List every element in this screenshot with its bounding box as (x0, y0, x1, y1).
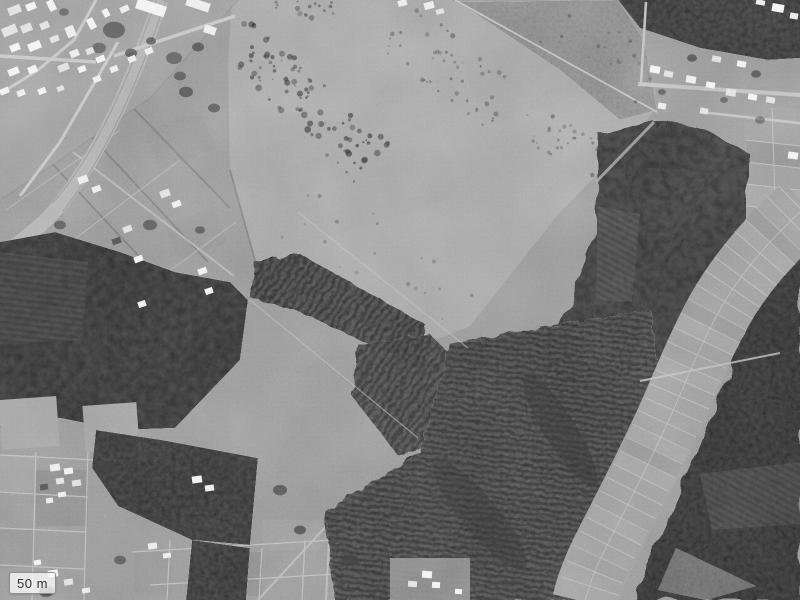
aerial-photo (0, 0, 800, 600)
map-viewport[interactable]: 50 m (0, 0, 800, 600)
scale-control: 50 m (9, 572, 56, 594)
scale-label: 50 m (17, 576, 48, 591)
tonal-blotch (0, 0, 800, 600)
